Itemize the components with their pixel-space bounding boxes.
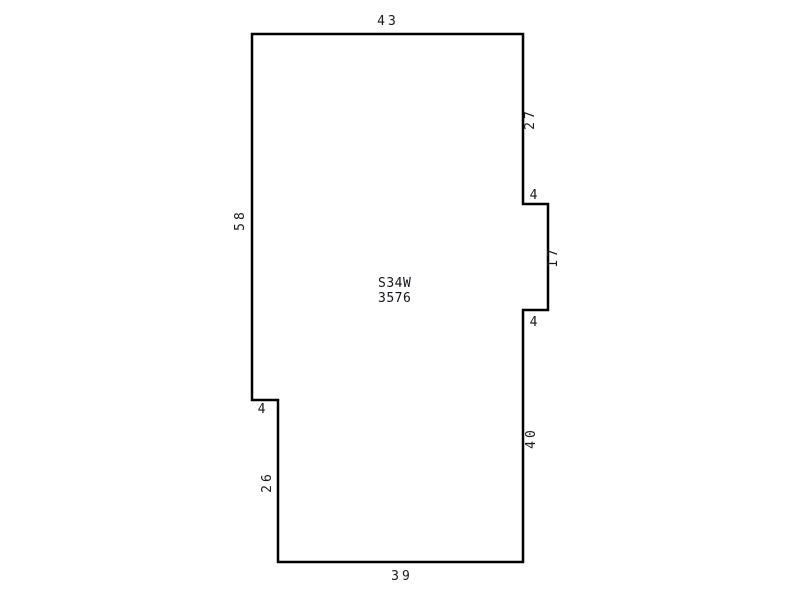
dimension-label-notch-right: 17 (546, 246, 561, 268)
parcel-sketch: 43274174403926458 S34W 3576 (0, 0, 800, 600)
dimension-label-notch-top: 4 (530, 188, 541, 203)
dimension-label-left-lower: 26 (260, 471, 275, 493)
dimension-label-top: 43 (377, 14, 399, 29)
dimension-label-bottom: 39 (391, 569, 413, 584)
dimension-label-left-upper: 58 (233, 209, 248, 231)
dimension-label-right-lower: 40 (524, 427, 539, 449)
parcel-code-label: S34W (378, 276, 411, 291)
dimension-label-left-step: 4 (258, 402, 269, 417)
sketch-canvas: 43274174403926458 S34W 3576 (0, 0, 800, 600)
dimension-label-right-upper: 27 (523, 108, 538, 130)
dimension-label-notch-bottom: 4 (530, 315, 541, 330)
parcel-number-label: 3576 (378, 291, 411, 306)
